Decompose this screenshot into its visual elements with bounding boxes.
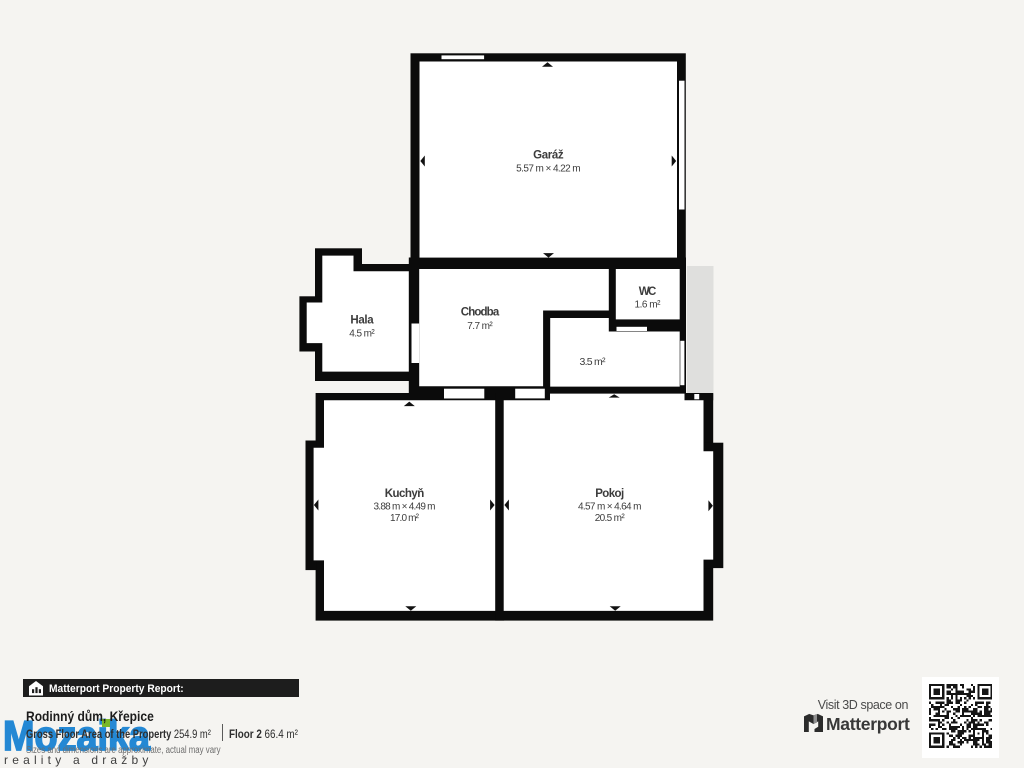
svg-text:Garáž: Garáž xyxy=(533,150,564,162)
svg-text:7.7 m²: 7.7 m² xyxy=(467,321,493,332)
svg-text:Hala: Hala xyxy=(350,314,374,326)
svg-text:20.5 m²: 20.5 m² xyxy=(595,513,626,524)
svg-text:5.57 m × 4.22 m: 5.57 m × 4.22 m xyxy=(516,164,581,175)
svg-text:Chodba: Chodba xyxy=(461,307,500,319)
svg-text:3.5 m²: 3.5 m² xyxy=(580,356,607,368)
svg-text:WC: WC xyxy=(639,286,657,298)
svg-text:4.5 m²: 4.5 m² xyxy=(349,329,375,340)
svg-text:4.57 m × 4.64 m: 4.57 m × 4.64 m xyxy=(578,502,642,513)
svg-text:1.6 m²: 1.6 m² xyxy=(635,300,662,311)
svg-text:Pokoj: Pokoj xyxy=(595,488,624,500)
svg-text:3.88 m × 4.49 m: 3.88 m × 4.49 m xyxy=(374,502,436,513)
svg-text:17.0 m²: 17.0 m² xyxy=(390,513,420,524)
svg-text:Kuchyň: Kuchyň xyxy=(385,488,425,500)
